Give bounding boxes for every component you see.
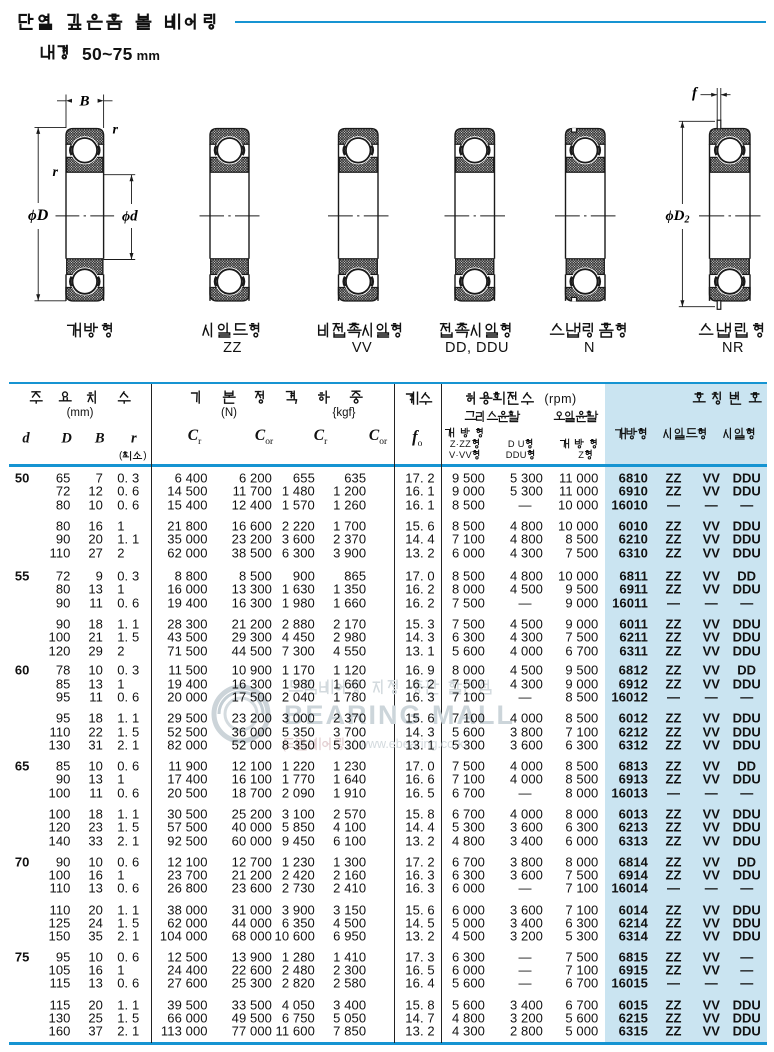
svg-text:r: r — [113, 123, 119, 138]
svg-text:B: B — [78, 94, 89, 110]
svg-text:ϕD: ϕD — [28, 207, 49, 224]
svg-text:f: f — [692, 86, 699, 102]
svg-text:ϕD2: ϕD2 — [666, 208, 690, 226]
svg-text:ϕd: ϕd — [122, 209, 138, 225]
svg-text:r: r — [53, 165, 59, 180]
